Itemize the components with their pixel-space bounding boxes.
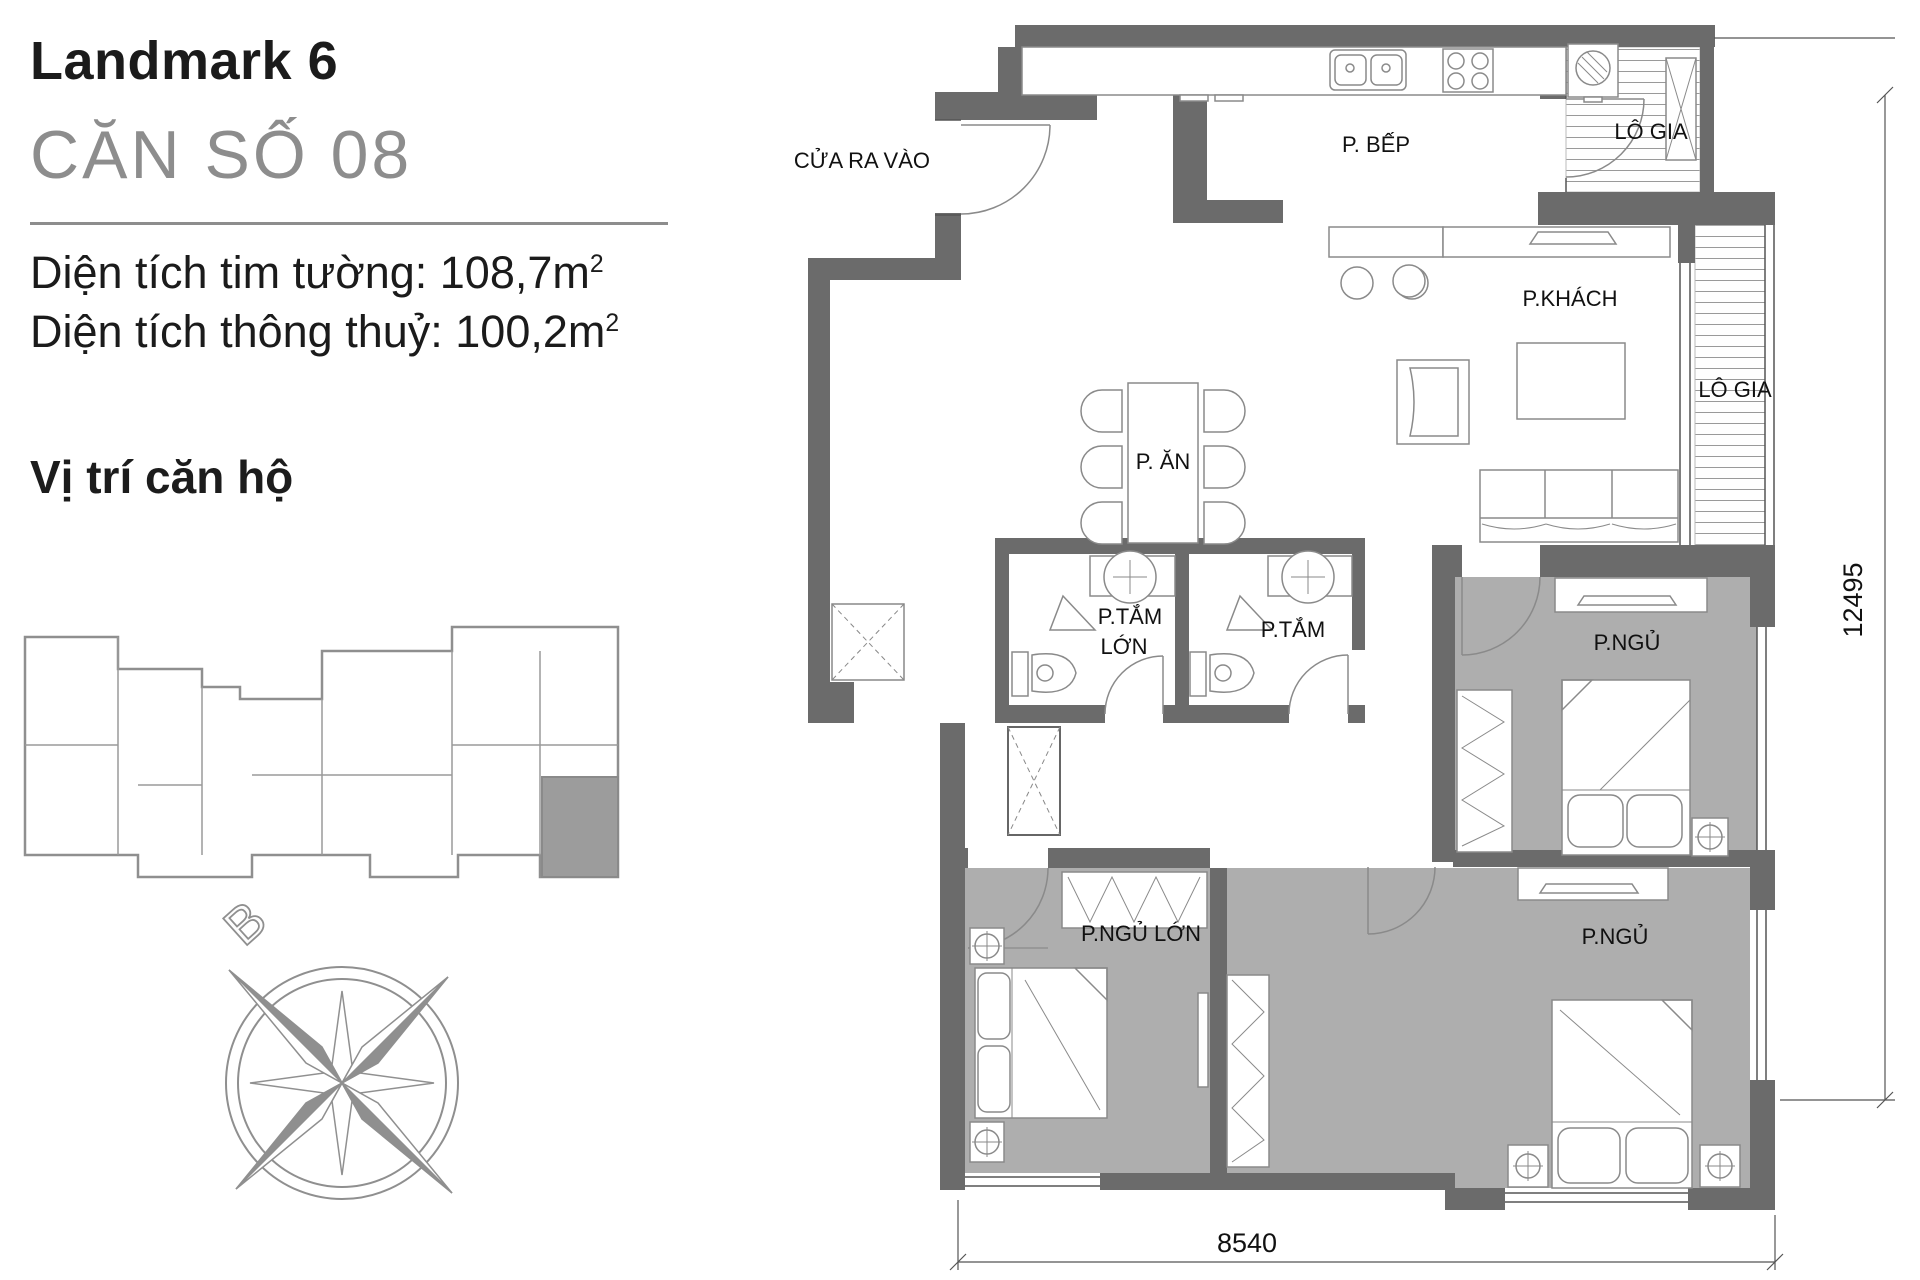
tv-console-living	[1443, 227, 1670, 257]
label-loggia-top: LÔ GIA	[1614, 119, 1688, 144]
dining-chair	[1204, 390, 1245, 432]
label-loggia-right: LÔ GIA	[1698, 377, 1772, 402]
pillow	[1626, 1128, 1688, 1183]
dim-width: 8540	[1217, 1228, 1277, 1258]
tv-panel	[1198, 993, 1208, 1087]
cabinet-handle	[1215, 95, 1243, 101]
dining-chair	[1081, 446, 1122, 488]
shower-corner	[1050, 596, 1095, 630]
window-bedroom-bottom	[1505, 1193, 1688, 1202]
wardrobe	[1457, 690, 1512, 852]
floor-plan: CỬA RA VÀO P. BẾP LÔ GIA P.KHÁCH LÔ GIA …	[0, 0, 1920, 1280]
pillow	[1568, 795, 1623, 847]
pillow	[1627, 795, 1682, 847]
window-bedroom-bottom-right	[1757, 910, 1766, 1080]
bed	[1562, 680, 1690, 855]
door-bath-small	[1289, 655, 1348, 714]
window-bedroom-top	[1757, 627, 1766, 850]
floorplan-page: { "left_panel": { "project": "Landmark 6…	[0, 0, 1920, 1280]
pillow	[1558, 1128, 1620, 1183]
wardrobe	[1062, 872, 1207, 928]
bed	[1552, 1000, 1692, 1188]
entrance-door	[935, 120, 1050, 215]
window-master	[965, 1177, 1100, 1186]
dim-height: 12495	[1838, 562, 1868, 637]
dining-chair	[1204, 446, 1245, 488]
bar-stool	[1341, 267, 1373, 299]
toilet	[1012, 652, 1076, 696]
door-bath-large	[1105, 656, 1163, 714]
label-kitchen: P. BẾP	[1342, 132, 1410, 157]
dim-extension-bottom	[958, 1200, 1775, 1270]
label-living: P.KHÁCH	[1523, 286, 1618, 311]
side-table	[1393, 265, 1425, 297]
toilet	[1190, 652, 1254, 696]
coffee-table	[1517, 343, 1625, 419]
dining-chair	[1081, 502, 1122, 544]
label-bedroom-master: P.NGỦ LỚN	[1081, 921, 1201, 946]
sofa	[1480, 470, 1678, 542]
label-bedroom-bottom: P.NGỦ	[1582, 924, 1649, 949]
label-entrance: CỬA RA VÀO	[794, 148, 930, 173]
label-bath-large-1: P.TẮM	[1098, 604, 1162, 629]
label-dining: P. ĂN	[1136, 449, 1191, 474]
stove-icon	[1443, 49, 1493, 92]
label-bedroom-top: P.NGỦ	[1594, 630, 1661, 655]
label-bath-small: P.TẮM	[1261, 617, 1325, 642]
dining-chair	[1081, 390, 1122, 432]
pillow	[978, 1046, 1010, 1112]
tv-shelf	[1555, 578, 1707, 612]
label-bath-large-2: LỚN	[1101, 634, 1148, 659]
glazing-living-loggia	[1680, 263, 1690, 545]
dining-chair	[1204, 502, 1245, 544]
pillow	[978, 973, 1010, 1039]
island-counter	[1329, 227, 1443, 299]
bed	[975, 968, 1107, 1118]
sink-icon	[1330, 50, 1406, 90]
cabinet-handle	[1180, 95, 1208, 101]
